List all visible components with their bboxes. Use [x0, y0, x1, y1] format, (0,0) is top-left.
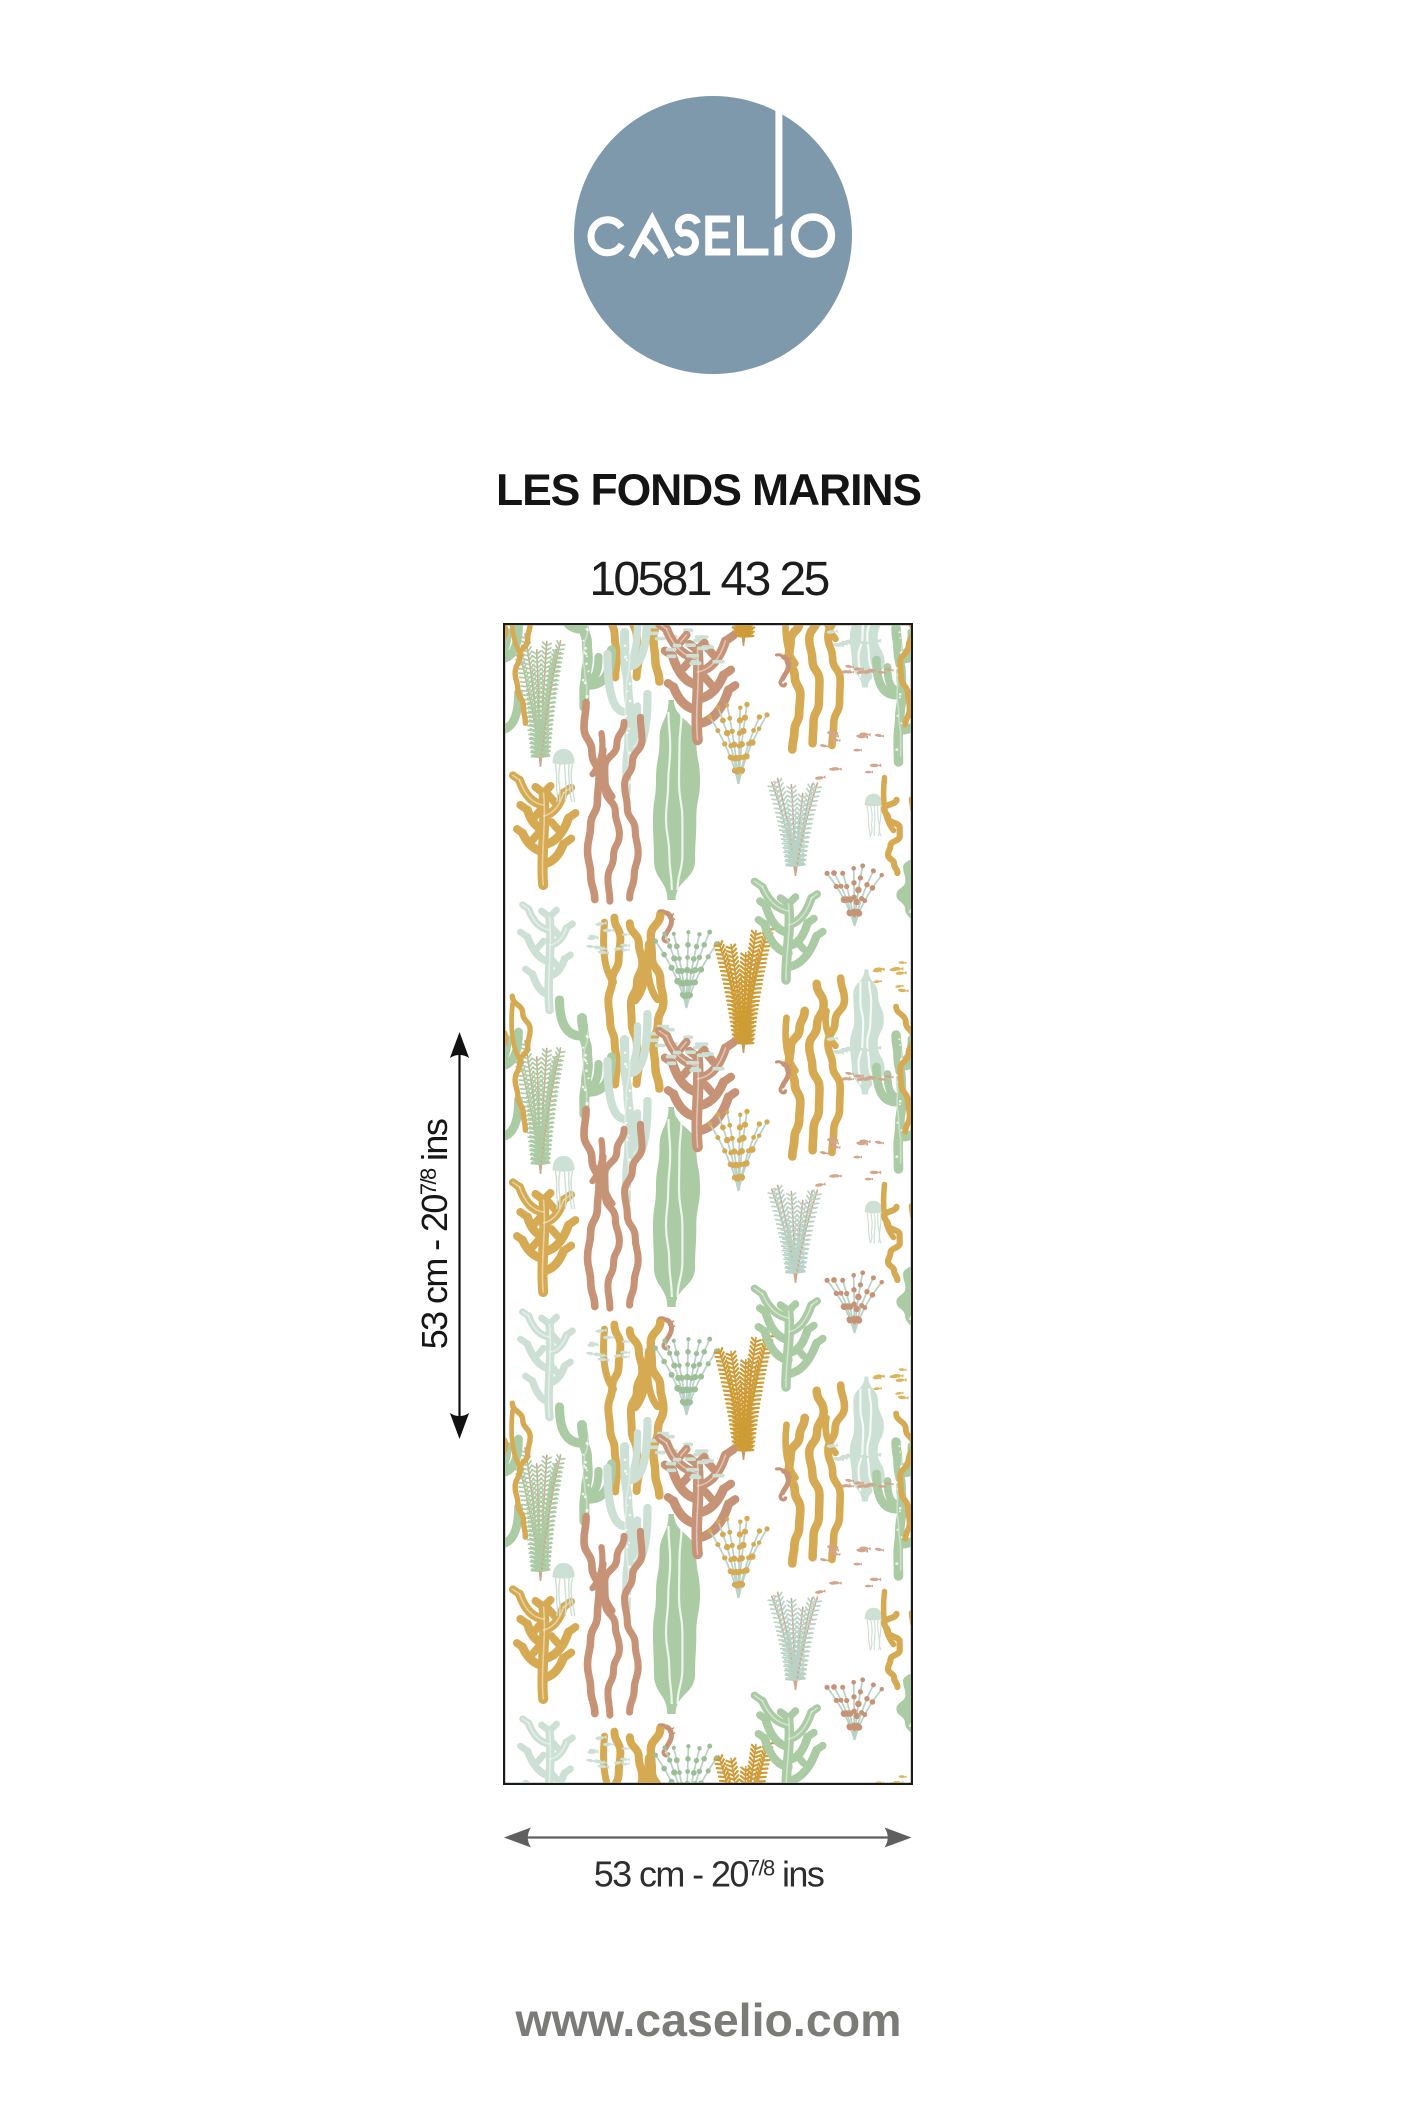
- svg-text:53 cm - 207/8 ins: 53 cm - 207/8 ins: [414, 1119, 455, 1349]
- svg-text:53 cm - 207/8 ins: 53 cm - 207/8 ins: [594, 1854, 824, 1895]
